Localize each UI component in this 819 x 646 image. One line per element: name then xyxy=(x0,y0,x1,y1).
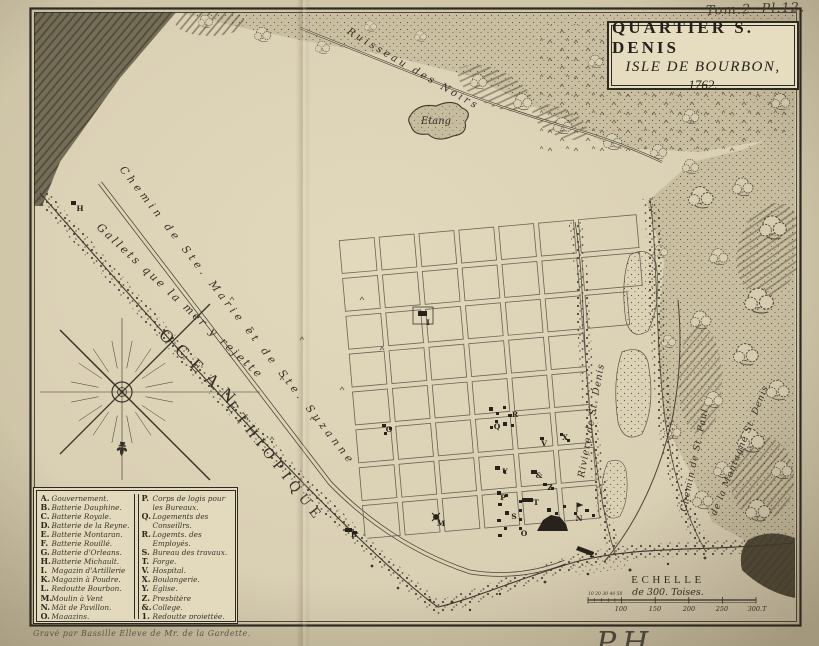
legend-label: Batterie d'Orleans. xyxy=(52,548,122,557)
map-date: 1762. xyxy=(688,77,717,93)
legend-item: C.Batterie Royale. xyxy=(41,512,132,521)
legend-label: Forge. xyxy=(153,557,177,566)
legend-label: Bureau des travaux. xyxy=(153,548,228,557)
legend-label: Redoutte projettée. xyxy=(153,612,225,619)
engraver-credit: Gravé par Bassille Elleve de Mr. de la G… xyxy=(33,629,251,638)
legend-key: P. xyxy=(142,494,153,512)
legend-item: 1.Redoutte projettée. xyxy=(142,612,233,619)
handwritten-stamp: PH 157325 xyxy=(596,629,819,646)
legend-label: Hospital. xyxy=(153,566,186,575)
legend-label: Batterie Rouillé. xyxy=(52,539,113,548)
legend-item: X.Boulangerie. xyxy=(142,575,233,584)
map-subtitle: ISLE DE BOURBON, xyxy=(625,59,780,76)
legend-item: S.Bureau des travaux. xyxy=(142,548,233,557)
legend-item: P.Corps de logis pour les Bureaux. xyxy=(142,494,233,512)
legend-item: O.Magazins. xyxy=(41,612,132,619)
legend-label: Gouvernement. xyxy=(52,494,109,503)
legend-key: 1. xyxy=(142,612,153,619)
legend-item: &.College. xyxy=(142,603,233,612)
legend-label: Magazins. xyxy=(52,612,90,619)
legend-item: Q.Logements des Conseillrs. xyxy=(142,512,233,530)
legend-item: H.Batterie Michault. xyxy=(41,557,132,566)
map-title: QUARTIER S. DENIS xyxy=(612,18,794,58)
legend-item: E.Batterie Montaran. xyxy=(41,530,132,539)
legend-label: Logements des Conseillrs. xyxy=(153,512,233,530)
legend-label: Eglise. xyxy=(153,584,178,593)
legend-label: Mât de Pavillon. xyxy=(52,603,112,612)
legend-label: Boulangerie. xyxy=(153,575,200,584)
legend-item: K.Magazin à Poudre. xyxy=(41,575,132,584)
legend-label: Batterie Michault. xyxy=(52,557,120,566)
legend-label: College. xyxy=(153,603,183,612)
legend-label: Magazin à Poudre. xyxy=(52,575,121,584)
legend-label: Logemts. des Employés. xyxy=(153,530,233,548)
title-cartouche-inner: QUARTIER S. DENIS ISLE DE BOURBON, 1762. xyxy=(611,25,795,86)
legend-label: Batterie de la Reyne. xyxy=(52,521,130,530)
legend-item: G.Batterie d'Orleans. xyxy=(41,548,132,557)
legend-item: I.Magazin d'Artillerie xyxy=(41,566,132,575)
legend-item: R.Logemts. des Employés. xyxy=(142,530,233,548)
legend-label: Batterie Royale. xyxy=(52,512,112,521)
legend-label: Batterie Montaran. xyxy=(52,530,123,539)
legend-item: F.Batterie Rouillé. xyxy=(41,539,132,548)
legend-item: Y.Eglise. xyxy=(142,584,233,593)
legend-key: R. xyxy=(142,530,153,548)
legend-label: Moulin à Vent xyxy=(52,594,103,603)
legend-item: V.Hospital. xyxy=(142,566,233,575)
legend-item: L.Redoutte Bourbon. xyxy=(41,584,132,593)
legend-item: A.Gouvernement. xyxy=(41,494,132,503)
legend-item: N.Mât de Pavillon. xyxy=(41,603,132,612)
legend-col-right: P.Corps de logis pour les Bureaux.Q.Loge… xyxy=(142,494,233,619)
legend-label: Corps de logis pour les Bureaux. xyxy=(153,494,233,512)
legend-label: Magazin d'Artillerie xyxy=(52,566,126,575)
legend-inner: A.Gouvernement.B.Batterie Dauphine.C.Bat… xyxy=(36,490,236,622)
legend-label: Redoutte Bourbon. xyxy=(52,584,122,593)
legend-label: Batterie Dauphine. xyxy=(52,503,122,512)
legend-key: O. xyxy=(41,612,52,619)
legend-divider xyxy=(134,494,139,619)
legend-key: Q. xyxy=(142,512,153,530)
legend-box: A.Gouvernement.B.Batterie Dauphine.C.Bat… xyxy=(33,487,238,624)
legend-item: M.Moulin à Vent xyxy=(41,594,132,603)
legend-item: D.Batterie de la Reyne. xyxy=(41,521,132,530)
map-page: Ruisseau des Noirs Gallets que la mer y … xyxy=(0,0,819,646)
legend-item: B.Batterie Dauphine. xyxy=(41,503,132,512)
legend-item: Z.Presbitère xyxy=(142,594,233,603)
title-cartouche: QUARTIER S. DENIS ISLE DE BOURBON, 1762. xyxy=(607,21,799,90)
legend-label: Presbitère xyxy=(153,594,192,603)
legend-col-left: A.Gouvernement.B.Batterie Dauphine.C.Bat… xyxy=(41,494,132,619)
legend-item: T.Forge. xyxy=(142,557,233,566)
